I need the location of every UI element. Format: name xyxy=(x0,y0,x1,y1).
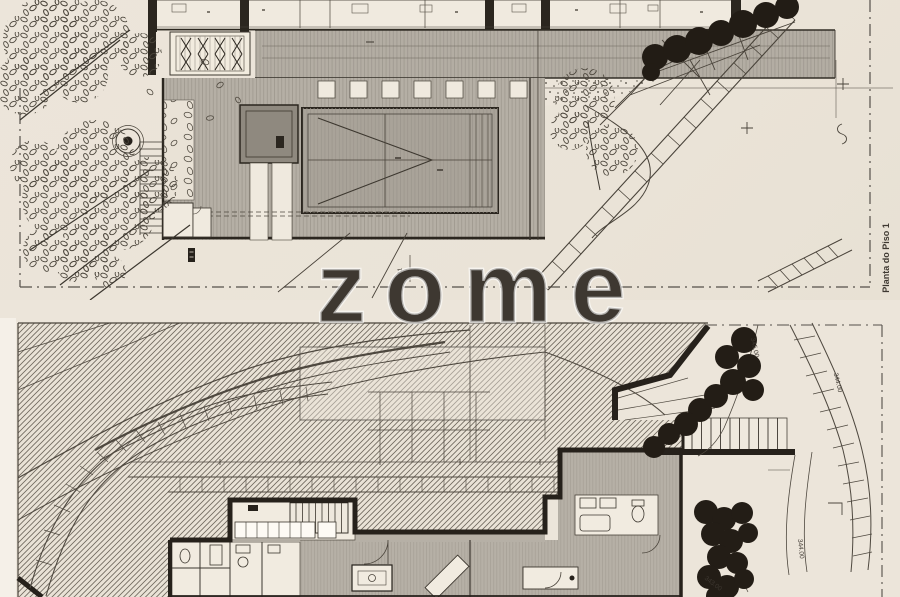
boundary-steps xyxy=(758,239,852,292)
bedroom-strip xyxy=(148,0,741,32)
lower-floor-plan: 345.00 344.00 343.00 344.00 xyxy=(0,300,900,597)
outdoor-stair xyxy=(683,418,787,450)
plan-drawing: Planta do Piso 1 C1 xyxy=(0,0,900,597)
watermark: zome xyxy=(316,232,644,344)
louvre-panel xyxy=(148,30,250,75)
scanned-architectural-sheet: Planta do Piso 1 C1 xyxy=(0,0,900,597)
drain-chip xyxy=(188,248,195,262)
roof-light-well xyxy=(302,108,498,213)
upper-plan-title: Planta do Piso 1 xyxy=(881,223,891,293)
dark-skylight xyxy=(240,105,298,163)
scan-edge xyxy=(0,318,16,597)
